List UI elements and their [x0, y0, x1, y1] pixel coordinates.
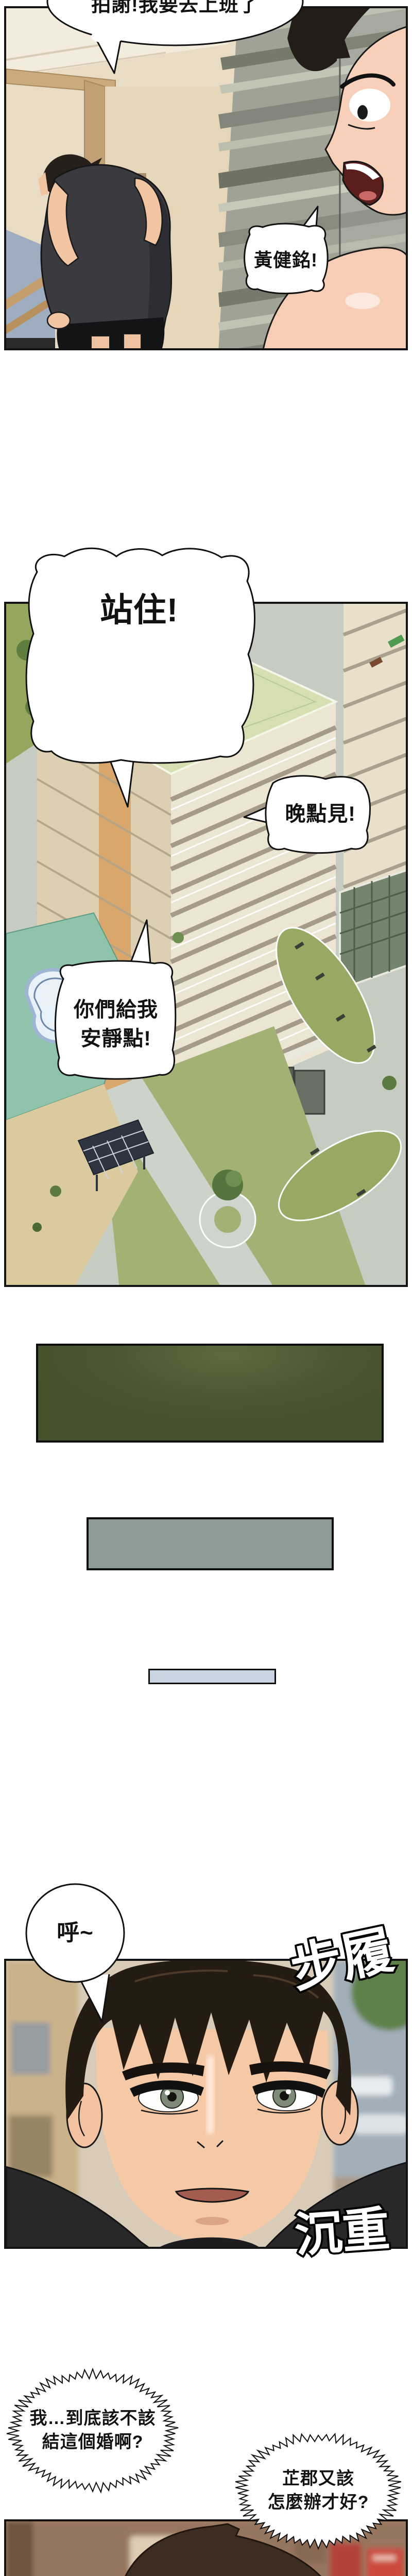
transition-bar-gray: [87, 1517, 334, 1570]
sfx-heavy-heart: 沉重: [295, 2194, 389, 2262]
speech-bubble-going-to-work-text: 拍謝!我要去上班了: [51, 0, 299, 19]
thought-bubble-zhijun-text: 芷郡又該 怎麼辦才好?: [248, 2460, 388, 2522]
sfx-heavy-steps: 步履: [289, 1918, 392, 1992]
speech-bubble-sigh-text: 呼~: [34, 1907, 116, 1959]
webtoon-page: 拍謝!我要去上班了 黃健銘!: [0, 0, 412, 2576]
speech-bubble-name-call-text: 黃健銘!: [247, 232, 324, 289]
thought-bubble-marriage-text: 我…到底該不該 結這個婚啊?: [21, 2398, 165, 2463]
speech-bubble-see-you-text: 晚點見!: [277, 789, 364, 838]
transition-bar-green: [36, 1344, 384, 1443]
speech-bubble-quiet-text: 你們給我 安靜點!: [64, 981, 167, 1066]
speech-bubble-stop-text: 站住!: [62, 580, 216, 641]
transition-bar-blue: [148, 1669, 276, 1684]
